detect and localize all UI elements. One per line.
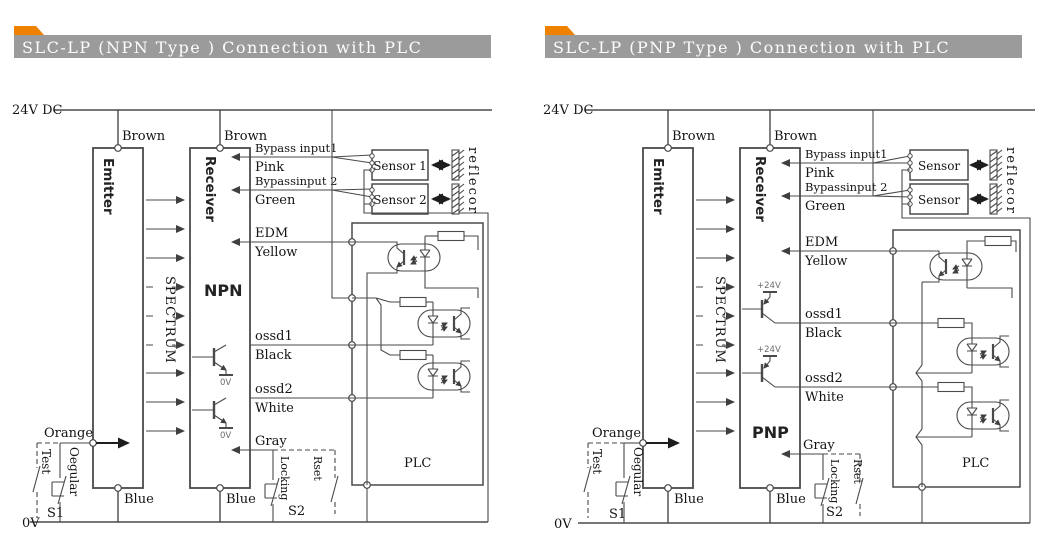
plc-label: PLC [404, 456, 431, 471]
locking-label: Locking [278, 456, 291, 500]
pnp-title-bar: SLC-LP (PNP Type ) Connection with PLC [545, 26, 1022, 58]
test-label: Test [590, 449, 604, 474]
receiver-blue-wire-label: Blue [226, 492, 256, 507]
bypass1-label: Bypass input1 [255, 141, 337, 155]
edm-label: EDM [255, 226, 288, 241]
sensor1-label: Sensor 1 [373, 159, 427, 173]
s1-switch-label: S1 [609, 507, 626, 522]
reset-label: Rset [851, 459, 864, 484]
bypass2-label: Bypassinput 2 [255, 174, 337, 188]
sensor1-label: Sensor [918, 159, 960, 173]
orange-tab-decoration [545, 26, 575, 35]
white-wire-label: White [255, 401, 294, 416]
test-label: Test [39, 449, 53, 474]
spectrum-label: SPECTRUM [162, 276, 177, 364]
npn-title-bar: SLC-LP (NPN Type ) Connection with PLC [14, 26, 491, 58]
receiver-terminals: Bypass input1 Pink Bypassinput 2 Green E… [782, 147, 887, 454]
ossd1-transistor-0v-label: 0V [220, 378, 231, 388]
ossd2-transistor-0v-label: 0V [220, 431, 231, 441]
pnp-output-transistors: +24V +24V [742, 281, 800, 387]
yellow-wire-label: Yellow [804, 254, 847, 269]
regular-label: Oegular [67, 447, 81, 496]
ossd1-label: ossd1 [805, 307, 843, 322]
ossd1-label: ossd1 [255, 329, 293, 344]
locking-label: Locking [828, 459, 841, 503]
gray-wire-label: Gray [803, 438, 835, 453]
receiver-brown-wire-label: Brown [774, 129, 818, 144]
s2-switch-label: S2 [826, 505, 843, 520]
emitter-blue-wire-label: Blue [124, 492, 154, 507]
ossd2-label: ossd2 [805, 371, 843, 386]
reflector-label: reflecor [465, 147, 480, 215]
supply-24v-label: 24V DC [543, 103, 593, 118]
emitter-brown-wire-label: Brown [122, 129, 166, 144]
reflector-label: reflecor [1003, 147, 1018, 215]
ossd2-transistor-24v-label: +24V [757, 345, 781, 355]
supply-0v-label: 0V [554, 517, 572, 532]
ossd2-label: ossd2 [255, 382, 293, 397]
spectrum-label: SPECTRUM [712, 276, 727, 364]
pink-wire-label: Pink [805, 166, 834, 181]
green-wire-label: Green [805, 199, 846, 214]
black-wire-label: Black [805, 326, 842, 341]
receiver-label: Receiver [752, 156, 768, 222]
npn-diagram: SLC-LP (NPN Type ) Connection with PLC 2… [12, 26, 492, 531]
wiring-diagrams-canvas: SLC-LP (NPN Type ) Connection with PLC 2… [0, 0, 1053, 552]
npn-diagram-title: SLC-LP (NPN Type ) Connection with PLC [22, 38, 422, 57]
sensor2-label: Sensor [918, 193, 960, 207]
receiver-blue-wire-label: Blue [776, 492, 806, 507]
black-wire-label: Black [255, 348, 292, 363]
test-input-circuit: Orange Test Oegular S1 [33, 426, 128, 522]
npn-output-transistors: 0V 0V [192, 345, 233, 441]
yellow-wire-label: Yellow [254, 245, 297, 260]
pnp-type-label: PNP [752, 423, 789, 442]
sensor2-label: Sensor 2 [373, 193, 427, 207]
ossd1-transistor-24v-label: +24V [757, 281, 781, 291]
emitter-brown-wire-label: Brown [672, 129, 716, 144]
orange-tab-decoration [14, 26, 44, 35]
emitter-block: Emitter Brown Blue [93, 110, 166, 522]
bypass1-label: Bypass input1 [805, 147, 887, 161]
emitter-block: Emitter Brown Blue [643, 110, 716, 523]
lock-reset-circuit: Locking Rset S2 [250, 450, 338, 522]
green-wire-label: Green [255, 193, 296, 208]
receiver-label: Receiver [202, 156, 218, 222]
white-wire-label: White [805, 390, 844, 405]
supply-24v-label: 24V DC [12, 103, 62, 118]
plc-label: PLC [962, 456, 989, 471]
pnp-diagram: SLC-LP (PNP Type ) Connection with PLC 2… [543, 26, 1035, 532]
light-beams: SPECTRUM [146, 200, 184, 431]
gray-wire-label: Gray [255, 434, 287, 449]
orange-wire-label: Orange [592, 426, 641, 441]
lock-reset-circuit: Locking Rset S2 [800, 454, 864, 523]
edm-label: EDM [805, 235, 838, 250]
supply-0v-label: 0V [22, 516, 40, 531]
test-input-circuit: Orange Test Oegular S1 [584, 426, 678, 523]
light-beams: SPECTRUM [696, 200, 734, 431]
npn-type-label: NPN [204, 281, 243, 300]
receiver-terminals: Bypass input1 Pink Bypassinput 2 Green E… [232, 141, 337, 450]
s2-switch-label: S2 [288, 504, 305, 519]
s1-switch-label: S1 [47, 506, 64, 521]
reset-label: Rset [311, 456, 324, 481]
emitter-label: Emitter [100, 158, 116, 215]
regular-label: Oegular [631, 447, 645, 496]
emitter-label: Emitter [650, 158, 666, 215]
pink-wire-label: Pink [255, 160, 284, 175]
bypass2-label: Bypassinput 2 [805, 180, 887, 194]
emitter-blue-wire-label: Blue [674, 492, 704, 507]
pnp-diagram-title: SLC-LP (PNP Type ) Connection with PLC [553, 38, 950, 57]
orange-wire-label: Orange [44, 426, 93, 441]
